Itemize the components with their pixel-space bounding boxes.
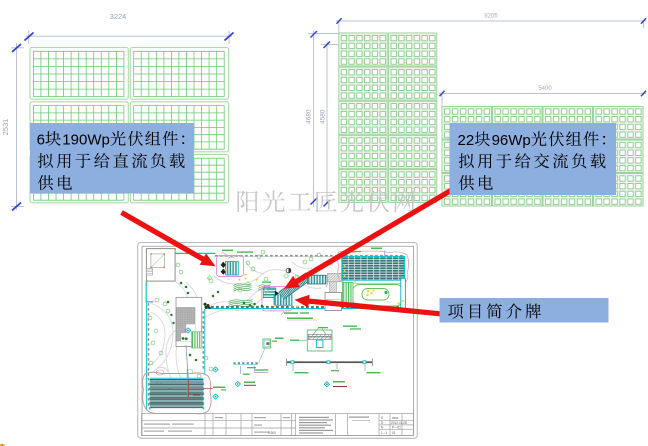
svg-text:5400: 5400 [538,86,552,92]
svg-text:8205: 8205 [484,14,498,20]
svg-text:1:300: 1:300 [268,431,276,435]
svg-text:2531: 2531 [1,119,10,136]
svg-text:xxxx: xxxx [392,416,399,420]
svg-text:4580: 4580 [320,109,327,124]
svg-text:01: 01 [392,431,396,435]
svg-text:P—01: P—01 [392,426,401,430]
svg-text:6: 6 [37,132,45,149]
svg-text:2012.11.28: 2012.11.28 [391,421,407,425]
svg-text:190Wp: 190Wp [62,132,110,149]
svg-text:4680: 4680 [306,109,313,124]
svg-text:96Wp: 96Wp [492,132,531,149]
svg-text:1 : 1: 1 : 1 [381,431,387,435]
svg-text:3224: 3224 [110,12,127,21]
svg-text:22: 22 [458,132,475,149]
svg-text:S: S [381,416,383,420]
